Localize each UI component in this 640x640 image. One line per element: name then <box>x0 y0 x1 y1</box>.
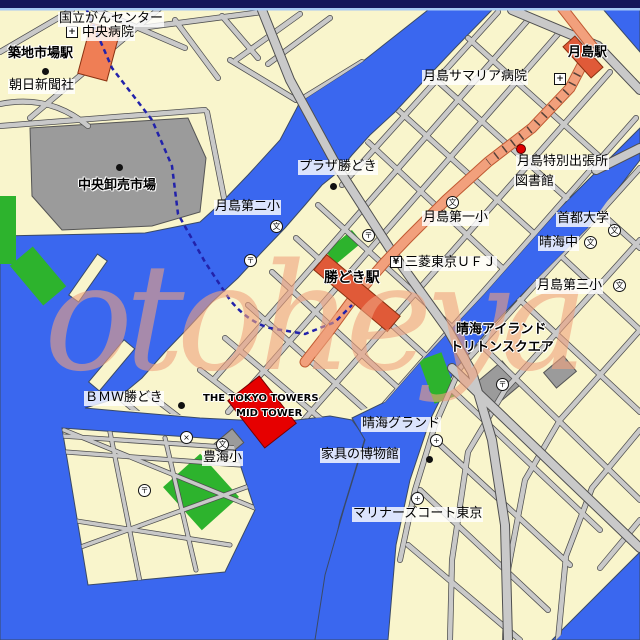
dot-icon <box>178 402 185 409</box>
harumi-chu-label: 晴海中 <box>538 236 579 251</box>
harumi-island-label: 晴海アイランド <box>456 323 546 338</box>
central-wholesale-market-building <box>30 118 206 230</box>
dot-icon <box>330 183 337 190</box>
tsukishima-samaria-byoin-label: 月島サマリア病院 <box>422 70 528 85</box>
dot-icon <box>426 456 433 463</box>
facility-icon: + <box>430 434 443 447</box>
tsukishima-tokubetsu-shucchojo-label: 月島特別出張所 <box>516 155 609 170</box>
tsukishima-dai3-sho-label: 月島第三小 <box>536 279 603 294</box>
hospital-icon: + <box>66 26 78 38</box>
triton-square-label: トリトンスクエア <box>450 341 554 356</box>
top-bar <box>0 0 640 8</box>
dot-icon <box>116 164 123 171</box>
map-canvas[interactable]: otoheya ++文文文文文文〒〒〒〒×¥++ 国立がんセンター中央病院築地市… <box>0 0 640 640</box>
chuo-oroshiuri-ichiba-label: 中央卸売市場 <box>78 179 156 194</box>
school-icon: 文 <box>446 196 459 209</box>
school-icon: 文 <box>613 279 626 292</box>
mitsubishi-tokyo-ufj-label: 三菱東京ＵＦＪ <box>404 256 497 271</box>
post-icon: 〒 <box>138 484 151 497</box>
tokyo-towers-line1-label: THE TOKYO TOWERS <box>203 393 319 404</box>
harumi-ground-label: 晴海グランド <box>361 417 441 432</box>
tsukishima-dai1-sho-label: 月島第一小 <box>422 211 489 226</box>
koban-icon: × <box>180 431 193 444</box>
kachidoki-station-label: 勝どき駅 <box>324 271 380 287</box>
red-dot-icon <box>516 144 526 154</box>
shuto-daigaku-label: 首都大学 <box>556 212 610 227</box>
asahi-shimbun-label: 朝日新聞社 <box>8 79 75 94</box>
facility-icon: + <box>411 492 424 505</box>
post-icon: 〒 <box>362 229 375 242</box>
school-icon: 文 <box>270 220 283 233</box>
bmw-kachidoki-label: ＢＭＷ勝どき <box>84 391 164 406</box>
tsukijishijo-station-label: 築地市場駅 <box>8 47 73 62</box>
post-icon: 〒 <box>244 254 257 267</box>
tokyo-towers-line2-label: MID TOWER <box>236 408 302 419</box>
post-icon: 〒 <box>496 378 509 391</box>
kagu-no-hakubutsukan-label: 家具の博物館 <box>320 448 400 463</box>
plaza-kachidoki-label: プラザ勝どき <box>298 160 378 175</box>
hospital-icon: + <box>554 73 566 85</box>
map-base <box>0 0 640 640</box>
tsukishima-station-label: 月島駅 <box>568 46 607 61</box>
tsukishima-dai2-sho-label: 月島第二小 <box>214 200 281 215</box>
bank-icon: ¥ <box>390 256 402 268</box>
toshokan-label: 図書館 <box>514 175 555 190</box>
chuo-byoin-label: 中央病院 <box>81 26 135 41</box>
dot-icon <box>42 68 49 75</box>
school-icon: 文 <box>584 236 597 249</box>
mariners-court-tokyo-label: マリナーズコート東京 <box>352 507 483 522</box>
toyomi-sho-label: 豊海小 <box>202 451 243 466</box>
